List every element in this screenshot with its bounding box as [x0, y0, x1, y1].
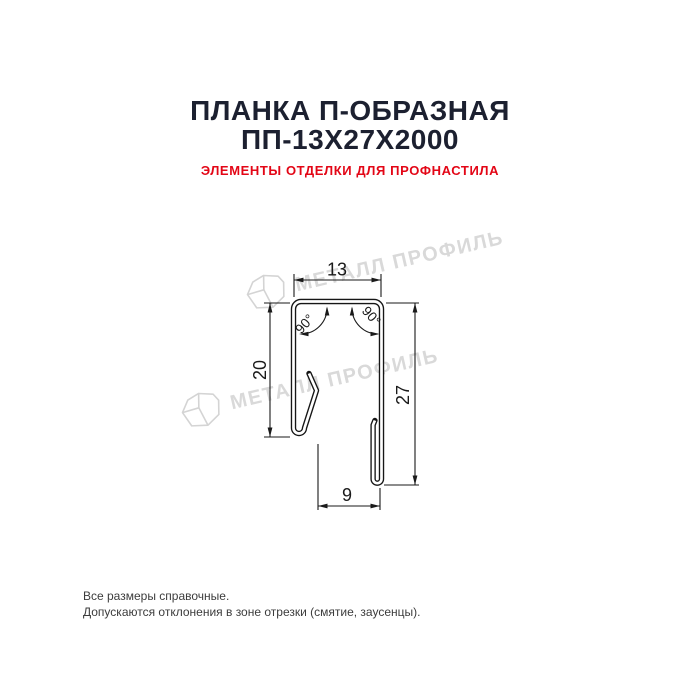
arrow — [413, 476, 418, 486]
arrow — [294, 278, 304, 283]
dim-value-right-height: 27 — [393, 385, 413, 405]
arrow — [268, 303, 273, 313]
arrow — [371, 504, 381, 509]
footer-note-line1: Все размеры справочные. — [83, 589, 420, 605]
arrow — [268, 428, 273, 438]
arrow — [413, 303, 418, 313]
arrow — [371, 332, 380, 336]
arrow — [325, 307, 330, 316]
footer-note-line2: Допускаются отклонения в зоне отрезки (с… — [83, 605, 420, 621]
dim-value-top-width: 13 — [327, 260, 347, 280]
footer-notes: Все размеры справочные. Допускаются откл… — [83, 589, 420, 620]
arrow — [350, 307, 354, 316]
dim-value-bottom-width: 9 — [342, 485, 352, 505]
arrow — [318, 504, 328, 509]
dim-value-left-height: 20 — [250, 360, 270, 380]
arrow — [372, 278, 382, 283]
